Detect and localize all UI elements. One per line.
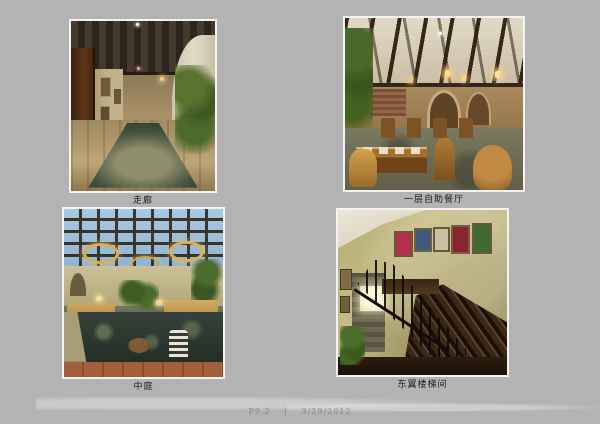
wall-picture-frame bbox=[114, 89, 121, 104]
ring-chandelier bbox=[83, 243, 119, 264]
dining-chair bbox=[349, 149, 377, 187]
presentation-page: 走廊 一层自助餐厅 bbox=[0, 0, 600, 424]
corridor-photo bbox=[69, 19, 217, 193]
footer-separator: | bbox=[284, 407, 288, 416]
stairwell-photo bbox=[336, 208, 509, 377]
hanging-greenery bbox=[191, 259, 223, 303]
figure-caption: 东翼楼梯间 bbox=[336, 380, 509, 390]
footer: P9.2 | 3/29/2012 bbox=[0, 407, 600, 417]
potted-plant bbox=[340, 326, 365, 366]
dining-tables-row bbox=[381, 118, 474, 139]
wall-picture-frame bbox=[100, 77, 112, 97]
table-lamp bbox=[96, 296, 102, 301]
figure-corridor: 走廊 bbox=[69, 19, 217, 206]
figure-buffet-restaurant: 一层自助餐厅 bbox=[343, 16, 525, 205]
table-lamp bbox=[156, 300, 162, 305]
center-planting bbox=[118, 280, 159, 310]
striped-armchair bbox=[169, 330, 188, 357]
dining-chair bbox=[434, 138, 455, 179]
brick-wall-panel bbox=[370, 89, 406, 117]
page-number: P9.2 bbox=[249, 407, 271, 416]
atrium-photo bbox=[62, 207, 225, 379]
figure-atrium: 中庭 bbox=[62, 207, 225, 392]
footer-date: 3/29/2012 bbox=[301, 407, 351, 416]
wall-picture-frame bbox=[394, 231, 413, 256]
wall-picture-frame bbox=[340, 296, 350, 313]
wall-picture-frame bbox=[433, 227, 451, 252]
wall-sconce-light bbox=[160, 77, 164, 81]
wall-picture-frame bbox=[451, 225, 470, 254]
buffet-restaurant-photo bbox=[343, 16, 525, 192]
figure-caption: 中庭 bbox=[62, 382, 225, 392]
potted-plant bbox=[175, 65, 217, 153]
wall-picture-frame bbox=[340, 269, 352, 289]
terracotta-floor-edge bbox=[64, 362, 223, 377]
potted-plant bbox=[343, 28, 373, 128]
dining-chair bbox=[473, 145, 512, 190]
wall-picture-frame bbox=[414, 228, 432, 252]
hanging-lantern bbox=[495, 71, 500, 78]
light-speck bbox=[136, 23, 139, 26]
figure-caption: 一层自助餐厅 bbox=[343, 195, 525, 205]
figure-stairwell: 东翼楼梯间 bbox=[336, 208, 509, 390]
hanging-lantern bbox=[445, 70, 450, 77]
mosaic-floor bbox=[64, 312, 223, 362]
figure-caption: 走廊 bbox=[69, 196, 217, 206]
wall-picture-frame bbox=[472, 223, 493, 253]
